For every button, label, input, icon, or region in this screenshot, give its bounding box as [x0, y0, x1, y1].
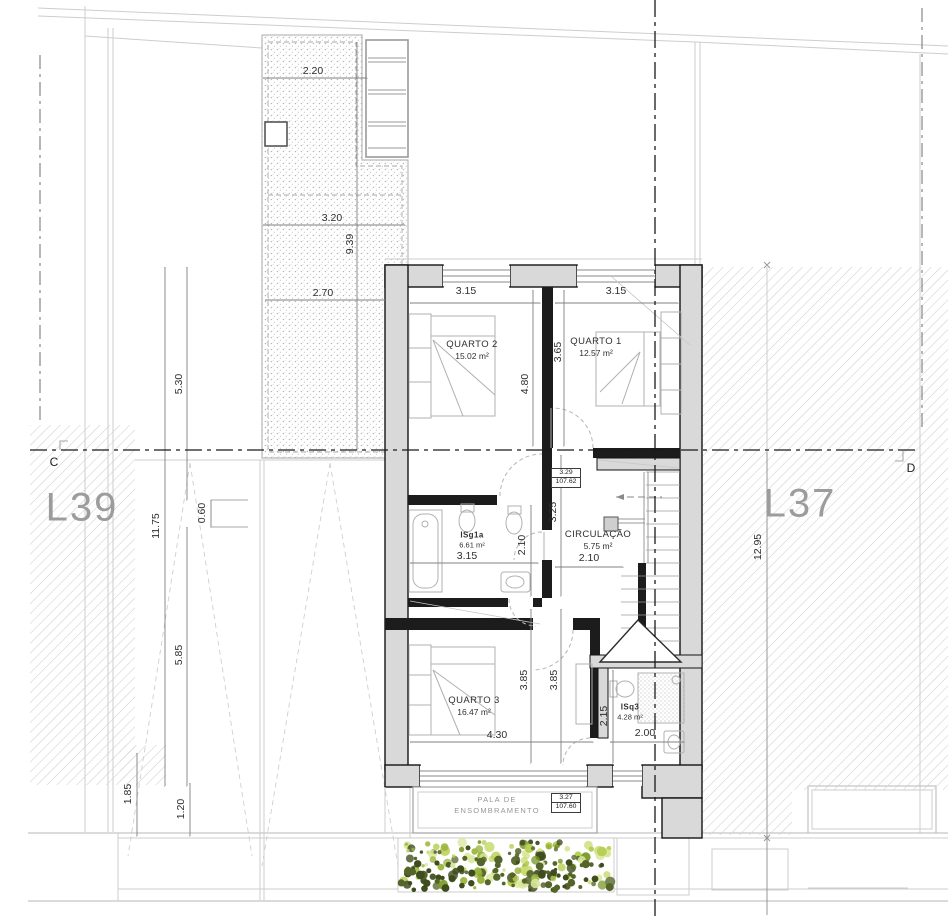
dimension-label: 3.85 — [548, 670, 560, 690]
exterior-stair — [366, 40, 408, 157]
dimension-label: 3.15 — [457, 550, 477, 562]
pala-label-line1: PALA DE — [454, 794, 539, 805]
dimension-label: 5.85 — [173, 645, 185, 665]
room-area: 16.47 m² — [448, 707, 499, 718]
room-name: QUARTO 2 — [446, 339, 497, 351]
vegetation-planter — [398, 838, 616, 893]
garden-projection-lines — [128, 463, 398, 866]
room-name: ISg1a — [459, 530, 484, 540]
floor-plan-canvas: QUARTO 215.02 m²QUARTO 112.57 m²ISg1a6.6… — [0, 0, 950, 917]
dimension-label: 3.20 — [322, 212, 342, 224]
room-label-quarto-2: QUARTO 215.02 m² — [446, 339, 497, 362]
pala-label: PALA DE ENSOMBRAMENTO — [454, 794, 539, 817]
dimension-label: 0.60 — [196, 503, 208, 523]
room-name: ISq3 — [617, 702, 642, 712]
dimension-label: 3.85 — [518, 670, 530, 690]
dimension-label: 3.25 — [547, 502, 559, 522]
room-area: 4.28 m² — [617, 712, 642, 721]
level-marker: 3.27107.60 — [551, 793, 581, 813]
dimension-label: 2.10 — [516, 535, 528, 555]
dimension-label: 3.15 — [606, 285, 626, 297]
level-value: 3.29 — [552, 469, 580, 478]
plan-drawing — [0, 0, 950, 917]
dimension-label: 5.30 — [173, 374, 185, 394]
dimension-label: 2.00 — [635, 727, 655, 739]
dimension-label: 4.30 — [487, 729, 507, 741]
level-elevation: 107.62 — [552, 478, 580, 486]
dimension-label: 2.20 — [303, 65, 323, 77]
lot-label-right: L37 — [764, 482, 837, 527]
dimension-label: 2.10 — [579, 552, 599, 564]
room-label-circulação: CIRCULAÇÃO5.75 m² — [565, 529, 631, 552]
section-marker-c: C — [50, 455, 59, 469]
level-marker: 3.29107.62 — [551, 468, 581, 488]
dimension-label: 3.15 — [456, 285, 476, 297]
room-area: 15.02 m² — [446, 351, 497, 362]
room-area: 6.61 m² — [459, 540, 484, 549]
level-elevation: 107.60 — [552, 803, 580, 811]
level-value: 3.27 — [552, 794, 580, 803]
dimension-label: 1.85 — [122, 784, 134, 804]
lot-label-left: L39 — [46, 486, 119, 531]
dimension-label: 12.95 — [752, 534, 764, 560]
lot-hatch-right — [702, 267, 948, 835]
room-area: 12.57 m² — [570, 348, 621, 359]
room-name: CIRCULAÇÃO — [565, 529, 631, 541]
room-label-quarto-3: QUARTO 316.47 m² — [448, 695, 499, 718]
room-name: QUARTO 1 — [570, 336, 621, 348]
room-label-isq3: ISq34.28 m² — [617, 702, 642, 721]
room-name: QUARTO 3 — [448, 695, 499, 707]
room-label-isg1a: ISg1a6.61 m² — [459, 530, 484, 549]
pala-label-line2: ENSOMBRAMENTO — [454, 805, 539, 816]
section-marker-d: D — [907, 461, 916, 475]
dimension-label: 3.65 — [552, 342, 564, 362]
dimension-label: 11.75 — [150, 513, 162, 539]
room-label-quarto-1: QUARTO 112.57 m² — [570, 336, 621, 359]
dimension-label: 1.20 — [175, 799, 187, 819]
dimension-label: 2.70 — [313, 287, 333, 299]
dimension-label: 2.15 — [598, 706, 610, 726]
room-area: 5.75 m² — [565, 541, 631, 552]
lot-hatch-left — [30, 425, 166, 785]
dimension-label: 9.39 — [344, 234, 356, 254]
dimension-label: 4.80 — [519, 374, 531, 394]
